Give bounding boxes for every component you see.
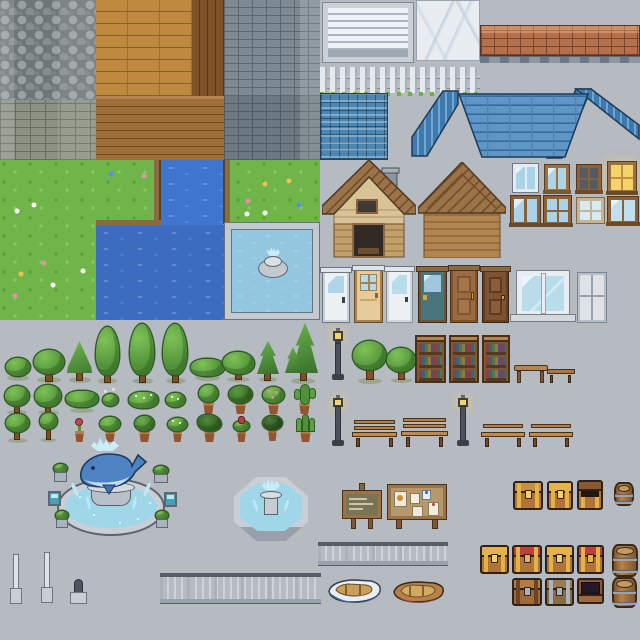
foliage — [130, 324, 154, 375]
foliage — [198, 415, 221, 431]
wooden-barn-facade — [418, 162, 506, 258]
group-tiles — [0, 0, 320, 160]
chest-clasp — [491, 554, 498, 563]
planter-box — [54, 472, 67, 482]
bench-leg — [517, 438, 521, 447]
potted-red-flower — [231, 417, 252, 443]
chest-trim — [581, 547, 585, 572]
chest-trim — [517, 483, 521, 508]
fountain-spray — [262, 479, 280, 490]
door-panel-line — [360, 299, 377, 301]
barrel-top — [616, 547, 634, 555]
metal-railing — [318, 542, 448, 565]
chest-trim — [534, 580, 538, 604]
foliage — [223, 352, 254, 374]
group-storage — [470, 470, 640, 615]
park-tree-small — [386, 348, 416, 384]
white-siding-tile — [322, 2, 414, 63]
foliage — [34, 350, 64, 374]
pole-base — [42, 588, 52, 602]
foliage — [263, 387, 284, 403]
metal-railing — [160, 573, 321, 603]
window-sill — [509, 223, 542, 227]
foliage — [100, 417, 120, 431]
pot — [202, 402, 215, 414]
barrel-band — [615, 494, 633, 497]
door-panel — [457, 298, 471, 315]
window-white — [513, 164, 538, 192]
whale-statue — [73, 446, 147, 496]
poplar-tree — [161, 324, 190, 384]
bushy-tree — [222, 352, 255, 382]
bench-seat — [529, 432, 573, 437]
pole-shaft — [45, 553, 49, 590]
red-brick-wall-cap — [480, 25, 640, 56]
lamp-head — [333, 331, 343, 341]
blue-hip-roof — [410, 88, 640, 162]
window-brown-double — [511, 196, 540, 225]
flower-head — [239, 417, 244, 423]
foliage — [103, 394, 118, 406]
bench-back-slat — [354, 420, 395, 424]
door-panel — [489, 299, 502, 315]
planter-box — [156, 519, 168, 528]
cactus-arm — [295, 390, 300, 399]
window-brown-dark — [577, 165, 601, 192]
bench-leg — [568, 375, 571, 383]
whale-fountain — [55, 440, 170, 540]
flower-dots — [104, 390, 107, 393]
marble-tile — [416, 0, 480, 61]
door-glass — [328, 276, 344, 293]
window-mullion — [611, 177, 633, 179]
foliage — [6, 358, 30, 376]
chest-trim — [534, 547, 538, 572]
chest-trim — [501, 547, 505, 572]
foliage — [191, 359, 224, 376]
pin — [432, 503, 435, 506]
shadow — [70, 408, 94, 413]
storefront-window — [517, 271, 569, 316]
chest-trim — [551, 483, 555, 508]
barrel-band — [615, 501, 633, 504]
chest-gold-band — [545, 545, 574, 574]
books-row — [486, 370, 506, 381]
pot — [234, 403, 247, 414]
wooden-cottage — [322, 160, 416, 258]
park-tree — [352, 341, 387, 384]
flower-plant — [100, 388, 121, 413]
bench-leg — [550, 375, 553, 383]
window-mullion — [525, 167, 527, 189]
chest-mouth — [581, 582, 600, 594]
window-brown-2pane — [545, 165, 569, 192]
door-handle — [471, 292, 474, 300]
foliage — [40, 413, 57, 429]
chest-clasp — [525, 490, 532, 499]
group-doors — [320, 266, 640, 326]
low-bench — [481, 424, 525, 448]
wide-hedge-2 — [66, 391, 98, 413]
signal-pole — [11, 555, 21, 603]
chest-clasp — [557, 490, 564, 499]
barrel — [612, 577, 637, 608]
bench-back-slat — [403, 424, 446, 428]
planter — [153, 466, 169, 483]
bench-leg — [565, 438, 569, 447]
door-tan-glazed — [355, 269, 382, 322]
conical-tree — [64, 341, 95, 383]
poplar-tree — [128, 324, 157, 384]
chest-trim — [516, 580, 520, 604]
window-sill — [543, 190, 571, 194]
bollard-base — [71, 593, 86, 603]
door-gray-panel — [578, 273, 606, 322]
door-mullion — [580, 295, 604, 297]
butterfly-picture — [397, 495, 403, 501]
sign-leg — [351, 518, 356, 529]
flower-dots — [267, 390, 270, 393]
aloe-blade — [303, 415, 308, 431]
foliage — [263, 416, 282, 430]
potted-aloe — [292, 415, 319, 443]
chest-open — [577, 480, 603, 510]
bench-seat — [352, 432, 397, 437]
window-sill — [606, 222, 640, 226]
door-glass — [424, 275, 441, 292]
foliage — [66, 391, 98, 407]
light-strip — [0, 0, 14, 160]
bench-leg — [356, 438, 360, 447]
chest-gold-trim — [513, 481, 543, 510]
shelf-cap — [415, 335, 446, 342]
siding-base — [328, 50, 408, 57]
basin-water — [167, 495, 174, 499]
lamp-base — [332, 440, 344, 446]
barrel-top — [616, 580, 633, 588]
sign-text-line — [349, 498, 367, 500]
foliage — [129, 392, 158, 408]
bookshelf — [415, 335, 446, 383]
foliage — [96, 327, 119, 375]
foliage — [67, 341, 92, 373]
fountain-cap — [260, 491, 282, 499]
pine-tree — [256, 341, 280, 383]
chest-trim — [595, 497, 599, 508]
door-knob — [405, 297, 408, 302]
signal-pole — [42, 553, 52, 602]
board-leg — [396, 519, 402, 529]
chest-red-lid — [512, 545, 542, 574]
table-leg — [540, 371, 544, 383]
dark-plank-trim-tile — [192, 0, 224, 96]
cactus-stem — [301, 385, 309, 404]
chest-trim — [549, 580, 553, 604]
pinned-note — [413, 507, 422, 516]
potted-herbs — [132, 416, 157, 443]
chest-open-lid — [579, 482, 601, 491]
lamp-head — [458, 398, 468, 407]
door-mullion — [591, 275, 593, 320]
books-row — [486, 344, 506, 355]
barrel-band — [613, 558, 637, 561]
bench-back-slat — [531, 424, 571, 428]
dark-wood-floor-tile — [96, 96, 224, 160]
potted-pink-flowers — [261, 387, 286, 415]
bench-leg — [439, 437, 443, 447]
chest-trim — [535, 483, 539, 508]
shelf-cap — [449, 335, 479, 342]
pinned-paper — [395, 492, 406, 506]
basin-water — [51, 494, 58, 498]
window-mullion — [622, 200, 624, 221]
pot — [267, 403, 280, 414]
foliage — [6, 414, 29, 432]
window-lit — [608, 162, 636, 193]
barrel-band — [613, 591, 636, 594]
table-leg — [517, 371, 521, 383]
bench-leg — [406, 437, 410, 447]
pinned-note — [411, 494, 419, 503]
barrel-top — [618, 485, 630, 492]
door-lintel — [449, 266, 479, 270]
foliage — [257, 341, 279, 374]
lamp-pole — [461, 407, 465, 440]
round-tree-2 — [33, 385, 63, 415]
chest-silver-trim — [545, 578, 574, 606]
books-row — [419, 344, 442, 355]
potted-plant — [227, 386, 254, 415]
flowering-bush — [129, 390, 158, 413]
door-lintel — [385, 267, 414, 271]
potted-bush — [196, 385, 221, 415]
wooden-signpost — [343, 483, 381, 529]
door-knob — [501, 295, 505, 300]
window-sill — [575, 190, 603, 194]
street-lamp — [455, 395, 471, 447]
lamp-pole — [336, 407, 340, 440]
books-row — [419, 357, 442, 368]
bench-leg — [485, 438, 489, 447]
wide-hedge — [191, 358, 224, 382]
river-bank-right — [223, 160, 230, 224]
door-lintel — [417, 267, 448, 271]
bookshelf — [449, 335, 479, 383]
poplar-tree — [94, 327, 121, 384]
chest-trim — [596, 547, 600, 572]
bench-seat — [481, 432, 525, 437]
foliage — [135, 416, 154, 431]
chest-clasp — [524, 587, 531, 596]
door-lintel — [321, 268, 351, 272]
bench-back-slat — [483, 424, 523, 428]
park-bench — [352, 420, 397, 448]
foliage — [5, 386, 29, 406]
water-basin — [164, 492, 177, 507]
small-round-tree — [3, 386, 31, 415]
window-sill — [606, 191, 638, 195]
brick-highlight — [300, 0, 320, 160]
chest-open-dark — [577, 578, 604, 604]
fountain-bowl — [264, 256, 282, 267]
round-tree — [33, 350, 65, 383]
foliage — [387, 348, 415, 372]
pin — [425, 491, 428, 494]
aloe-blade — [310, 419, 314, 431]
lamp-pole — [336, 344, 340, 374]
door-brown-panel — [451, 269, 477, 322]
bollard — [71, 580, 86, 603]
door-knob — [375, 293, 378, 298]
cactus-arm — [310, 389, 315, 398]
lamp-head — [333, 398, 343, 407]
river-bank-left — [154, 160, 161, 225]
bench-back-slat — [403, 418, 446, 422]
flower-dots — [172, 420, 174, 422]
barrel-band — [613, 602, 636, 605]
street-lamp — [330, 395, 346, 447]
group-terrain — [0, 160, 320, 320]
flower-dots — [171, 396, 173, 398]
lamp-base — [332, 374, 344, 380]
chest-red-lid — [577, 545, 604, 574]
rowboat-wood — [392, 579, 446, 605]
brick-top-row — [481, 26, 639, 33]
books-row — [486, 357, 506, 368]
pinned-paper — [429, 503, 438, 515]
wood-plank-wall-tile — [96, 0, 192, 96]
pool-fountain — [258, 249, 288, 279]
planter — [53, 464, 68, 482]
flower-head — [76, 419, 82, 425]
chest-clasp — [556, 587, 563, 596]
sign-text-line — [349, 503, 373, 505]
water-sparkles — [79, 496, 81, 498]
barrel-band — [613, 570, 637, 573]
shelf-cap — [482, 335, 510, 342]
lamp-base — [457, 440, 469, 446]
sign-leg — [368, 518, 373, 529]
fountain-spray — [267, 247, 280, 256]
books-row — [453, 357, 475, 368]
door-glass — [392, 275, 407, 294]
small-barrel — [614, 482, 634, 506]
planter — [155, 511, 169, 528]
low-bench — [529, 424, 573, 448]
small-bush — [5, 356, 31, 382]
red-brick-base — [480, 56, 640, 63]
small-bench — [547, 369, 575, 383]
bench-seat — [401, 431, 448, 436]
small-tree-3 — [4, 414, 31, 443]
foliage — [199, 385, 218, 402]
door-knob — [423, 295, 427, 300]
pot — [299, 430, 312, 442]
chest-trim — [566, 547, 570, 572]
river-water — [161, 160, 223, 226]
thin-tree — [36, 413, 61, 443]
door-lintel — [481, 267, 510, 271]
board-leg — [432, 519, 438, 529]
pot — [298, 403, 311, 414]
group-vegetation — [0, 323, 320, 445]
foliage — [353, 341, 386, 370]
pot — [172, 431, 183, 442]
sign-text-line — [349, 508, 363, 510]
door-mullion — [361, 282, 376, 284]
chest-gold-band — [480, 545, 509, 574]
door-white — [387, 270, 412, 322]
foliage — [166, 393, 185, 407]
double-pine — [285, 323, 319, 385]
flower-dots — [135, 395, 137, 397]
books-row — [453, 344, 475, 355]
door-lintel — [353, 266, 384, 270]
octagonal-fountain — [234, 477, 308, 541]
barrel — [612, 544, 638, 577]
bench-leg — [389, 438, 393, 447]
chest-clasp — [587, 554, 594, 563]
rowboat-white — [327, 577, 383, 605]
storefront-sill — [511, 315, 575, 321]
door-dark-brown — [483, 270, 508, 322]
notice-board — [388, 485, 446, 529]
wooden-table — [514, 365, 548, 383]
window-brown-4pane — [544, 196, 571, 225]
door-knob — [342, 297, 345, 303]
door-teal-glazed — [419, 270, 446, 322]
window-sill — [542, 223, 573, 227]
chest-front — [579, 594, 602, 602]
foliage — [35, 385, 61, 407]
chest-clasp — [524, 554, 531, 563]
pot — [236, 430, 247, 442]
group-furniture — [320, 323, 640, 453]
stone-pool-tile — [224, 222, 320, 320]
chest-trim — [566, 580, 570, 604]
chest-trim — [565, 483, 569, 508]
window-mullion — [524, 199, 527, 222]
door-panel — [457, 276, 471, 293]
chest-trim — [516, 547, 520, 572]
light-strip — [58, 0, 96, 160]
planter — [55, 511, 69, 528]
tileset-sheet — [0, 0, 640, 640]
small-bush-2 — [164, 392, 187, 413]
window-mullion — [580, 178, 598, 180]
chest-gold-band — [547, 481, 573, 510]
foliage — [168, 418, 187, 431]
planter-box — [56, 519, 68, 528]
window-blue-2pane — [608, 197, 638, 224]
bench-leg — [533, 438, 537, 447]
window-mullion — [556, 168, 558, 189]
group-windows — [505, 158, 640, 230]
pole-base — [11, 589, 21, 603]
lake-water — [96, 225, 224, 320]
pot — [267, 429, 278, 441]
potted-dark-plant — [261, 416, 284, 442]
siding-slats — [328, 8, 408, 50]
storefront-mullion — [542, 274, 545, 313]
potted-cactus — [292, 385, 318, 415]
books-row — [453, 370, 475, 381]
street-lamp — [329, 328, 347, 380]
window-mullion — [547, 210, 568, 212]
foliage — [163, 324, 187, 375]
window-pale-4pane — [577, 198, 604, 223]
planter-box — [154, 474, 168, 483]
